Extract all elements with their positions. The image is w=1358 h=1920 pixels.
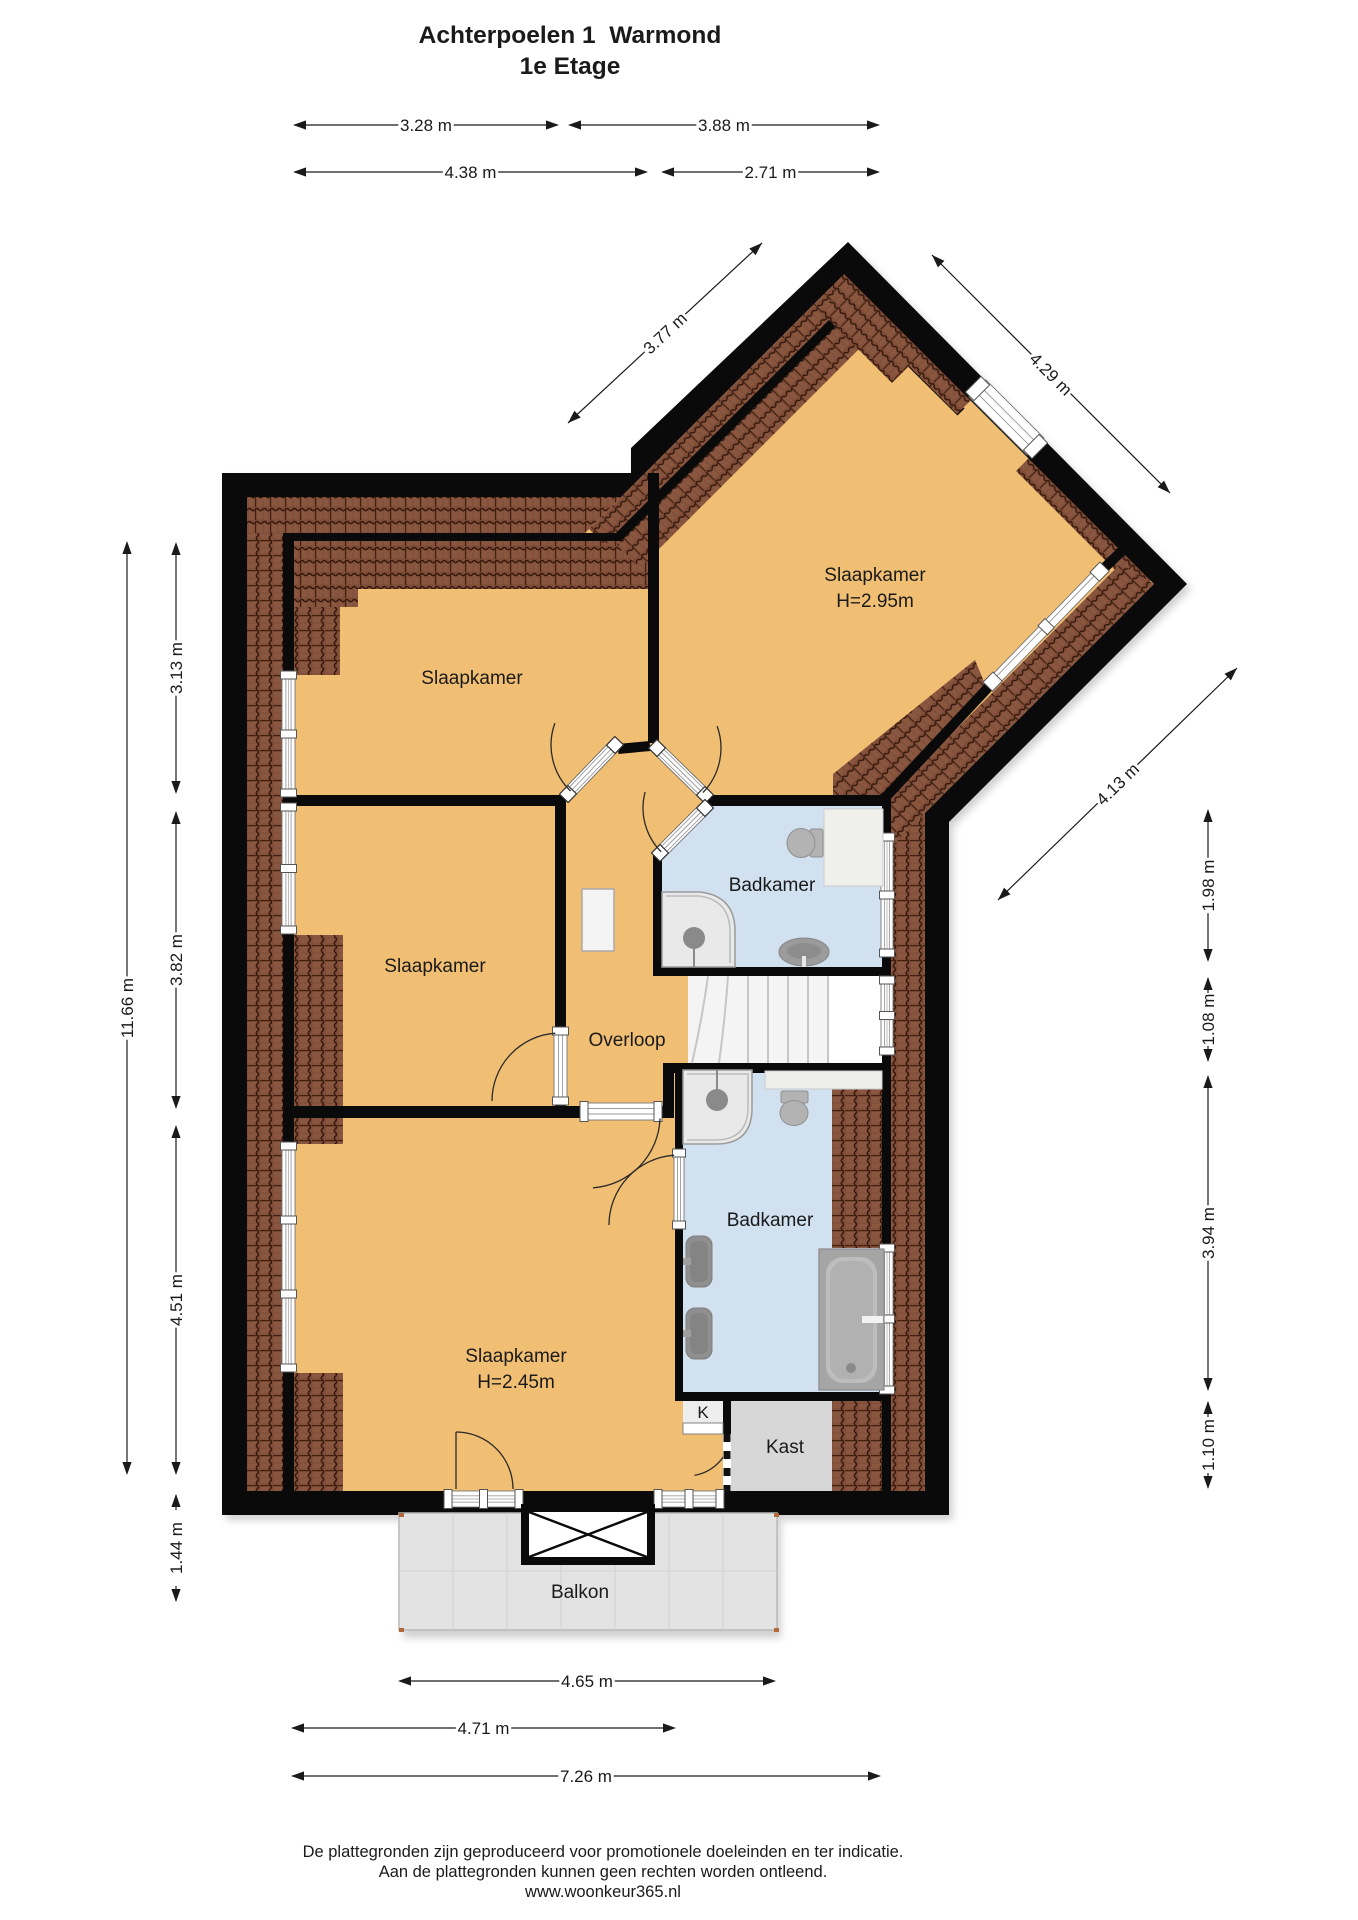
svg-text:1.10 m: 1.10 m [1199,1419,1218,1471]
svg-text:4.51 m: 4.51 m [167,1274,186,1326]
svg-text:Slaapkamer: Slaapkamer [421,668,523,689]
svg-text:Kast: Kast [766,1437,805,1458]
svg-text:2.71 m: 2.71 m [745,163,797,182]
svg-text:4.65 m: 4.65 m [561,1672,613,1691]
svg-text:K: K [697,1403,709,1422]
svg-text:Badkamer: Badkamer [729,875,816,896]
svg-text:4.38 m: 4.38 m [445,163,497,182]
svg-text:Slaapkamer: Slaapkamer [824,565,926,586]
svg-text:1.08 m: 1.08 m [1199,994,1218,1046]
svg-text:11.66 m: 11.66 m [118,978,137,1038]
svg-text:3.88 m: 3.88 m [698,116,750,135]
svg-text:Badkamer: Badkamer [727,1210,814,1231]
svg-text:H=2.45m: H=2.45m [477,1372,555,1393]
svg-text:1.44 m: 1.44 m [167,1522,186,1574]
svg-text:4.71 m: 4.71 m [458,1719,510,1738]
svg-text:Slaapkamer: Slaapkamer [384,956,486,977]
svg-text:Aan de plattegronden kunnen ge: Aan de plattegronden kunnen geen rechten… [379,1863,828,1881]
svg-text:www.woonkeur365.nl: www.woonkeur365.nl [524,1883,681,1901]
svg-text:3.94 m: 3.94 m [1199,1207,1218,1259]
svg-text:Balkon: Balkon [551,1582,609,1603]
svg-text:Overloop: Overloop [588,1030,665,1051]
svg-text:De plattegronden zijn geproduc: De plattegronden zijn geproduceerd voor … [303,1843,904,1861]
svg-text:4.29 m: 4.29 m [1026,349,1076,399]
svg-text:3.77 m: 3.77 m [640,309,691,358]
svg-text:1.98 m: 1.98 m [1199,860,1218,912]
svg-text:7.26 m: 7.26 m [560,1767,612,1786]
svg-text:1e Etage: 1e Etage [520,53,621,80]
svg-text:Slaapkamer: Slaapkamer [465,1346,567,1367]
svg-text:3.82 m: 3.82 m [167,934,186,986]
svg-text:3.13 m: 3.13 m [167,642,186,694]
svg-text:H=2.95m: H=2.95m [836,591,914,612]
svg-text:4.13 m: 4.13 m [1093,759,1144,809]
svg-text:Achterpoelen 1 Warmond: Achterpoelen 1 Warmond [419,22,722,49]
svg-text:3.28 m: 3.28 m [400,116,452,135]
